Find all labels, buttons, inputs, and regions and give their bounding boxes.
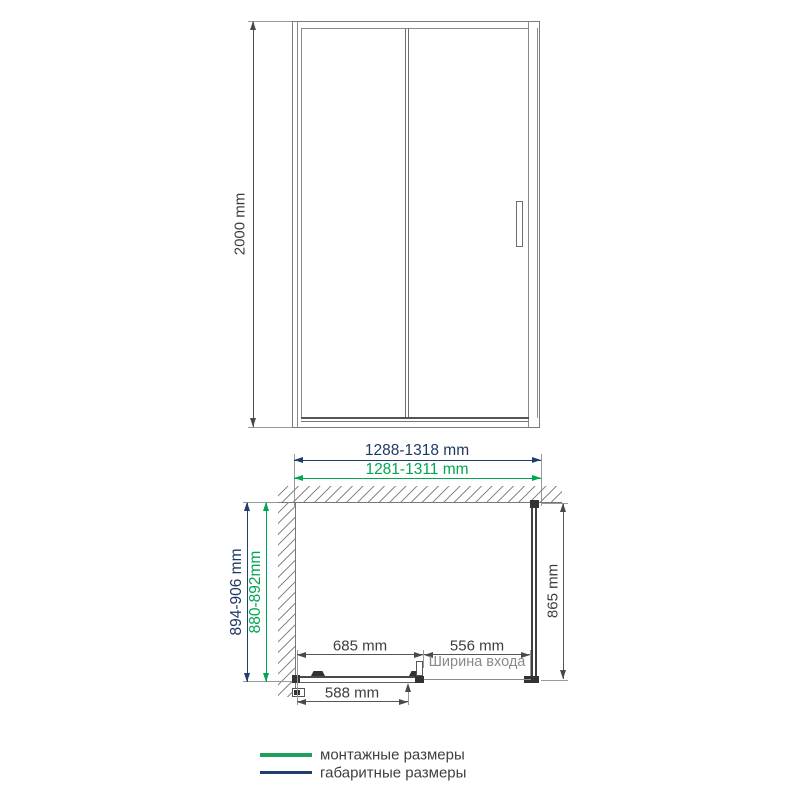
dim-arrow <box>414 652 423 658</box>
right-profile-line <box>528 21 529 428</box>
overall-width-label: 1288-1318 mm <box>365 442 469 460</box>
dim-arrow <box>263 502 269 511</box>
top-rail-inner-line <box>301 28 529 29</box>
wall-profile-top-bracket <box>530 500 539 508</box>
track-bar-inner-line <box>296 682 423 683</box>
dim-arrow <box>399 699 408 705</box>
dim-line-depth-mounting <box>266 503 267 682</box>
door-outer-frame <box>292 21 540 428</box>
dim-arrow <box>294 457 303 463</box>
legend-mounting-label: монтажные размеры <box>320 747 465 764</box>
ext-line-bottom-left <box>243 681 296 682</box>
depth-mounting-label: 880-892mm <box>247 551 265 634</box>
height-dimension-label: 2000 mm <box>232 193 249 256</box>
bottom-rail-line <box>301 417 529 419</box>
legend-overall-swatch <box>260 771 312 775</box>
legend-overall-label: габаритные размеры <box>320 764 466 781</box>
glass-width-label: 588 mm <box>325 685 379 702</box>
depth-overall-label: 894-906 mm <box>228 548 246 635</box>
dim-line-side-panel <box>563 504 564 679</box>
dim-arrow <box>294 475 303 481</box>
dim-arrow <box>297 652 306 658</box>
mounting-width-label: 1281-1311 mm <box>365 461 468 479</box>
dim-arrow <box>532 457 541 463</box>
side-panel-label: 865 mm <box>545 564 562 618</box>
dim-arrow <box>250 21 256 30</box>
door-edge-cap <box>415 676 424 683</box>
dim-arrow <box>532 475 541 481</box>
dim-line-height <box>253 22 254 427</box>
dim-arrow <box>263 673 269 682</box>
dim-arrow <box>560 503 566 512</box>
entrance-label: 556 mm <box>450 638 504 655</box>
dim-arrow <box>244 673 250 682</box>
door-leading-edge <box>416 661 423 676</box>
track-bar-line <box>296 676 423 678</box>
door-divider-line <box>405 28 406 418</box>
legend-mounting-swatch <box>260 753 312 757</box>
wall-profile-bottom-bracket <box>524 676 539 683</box>
door-divider-line <box>408 28 409 418</box>
left-profile-inner-line <box>301 28 302 418</box>
dim-arrow <box>405 683 411 692</box>
shower-door-technical-drawing: 2000 mm 1288-1318 mm 1281-1311 mm <box>0 0 800 800</box>
dim-arrow <box>244 502 250 511</box>
side-panel-glass-line <box>531 503 533 680</box>
ext-line-685-left <box>297 650 298 705</box>
entrance-caption: Ширина входа <box>429 654 526 670</box>
door-rail-label: 685 mm <box>333 638 387 655</box>
wall-hatch-left <box>278 503 296 697</box>
ext-line-bottom <box>248 427 293 428</box>
side-panel-glass-line <box>535 503 537 680</box>
bottom-rail-inner-line <box>301 421 529 422</box>
dim-arrow <box>297 699 306 705</box>
right-profile-inner-line <box>537 28 538 418</box>
ext-line-556-right <box>530 650 531 676</box>
roller-bracket <box>311 671 325 677</box>
ext-line-865-bottom <box>541 680 568 681</box>
door-handle <box>516 201 523 247</box>
threshold-line <box>423 679 531 680</box>
wall-hatch-top <box>278 486 562 503</box>
dim-arrow <box>560 670 566 679</box>
left-profile-line <box>297 21 298 428</box>
dim-arrow <box>250 418 256 427</box>
